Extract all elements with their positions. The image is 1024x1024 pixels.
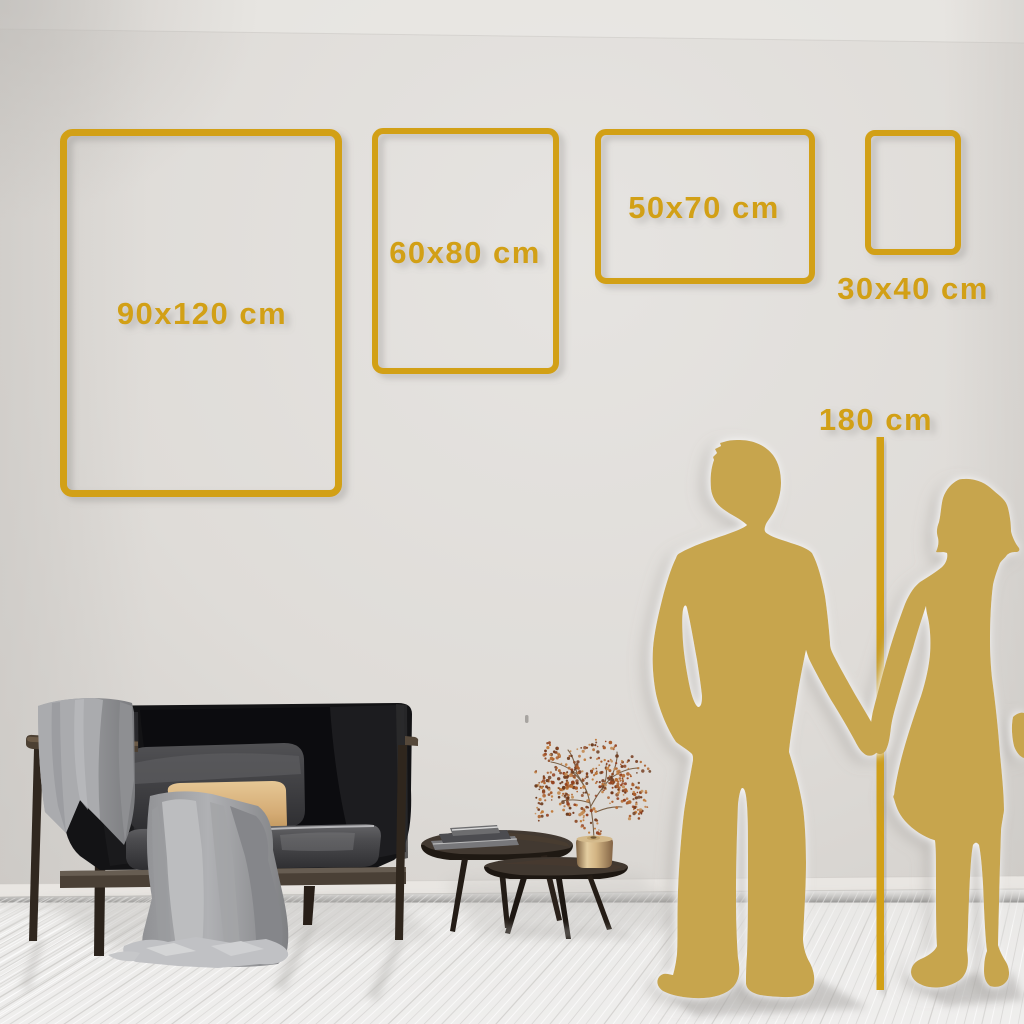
svg-text:50x70 cm: 50x70 cm: [628, 190, 780, 225]
svg-text:90x120 cm: 90x120 cm: [117, 296, 287, 331]
svg-text:180 cm: 180 cm: [819, 402, 933, 437]
svg-text:60x80 cm: 60x80 cm: [389, 235, 541, 270]
svg-text:30x40 cm: 30x40 cm: [837, 271, 989, 306]
